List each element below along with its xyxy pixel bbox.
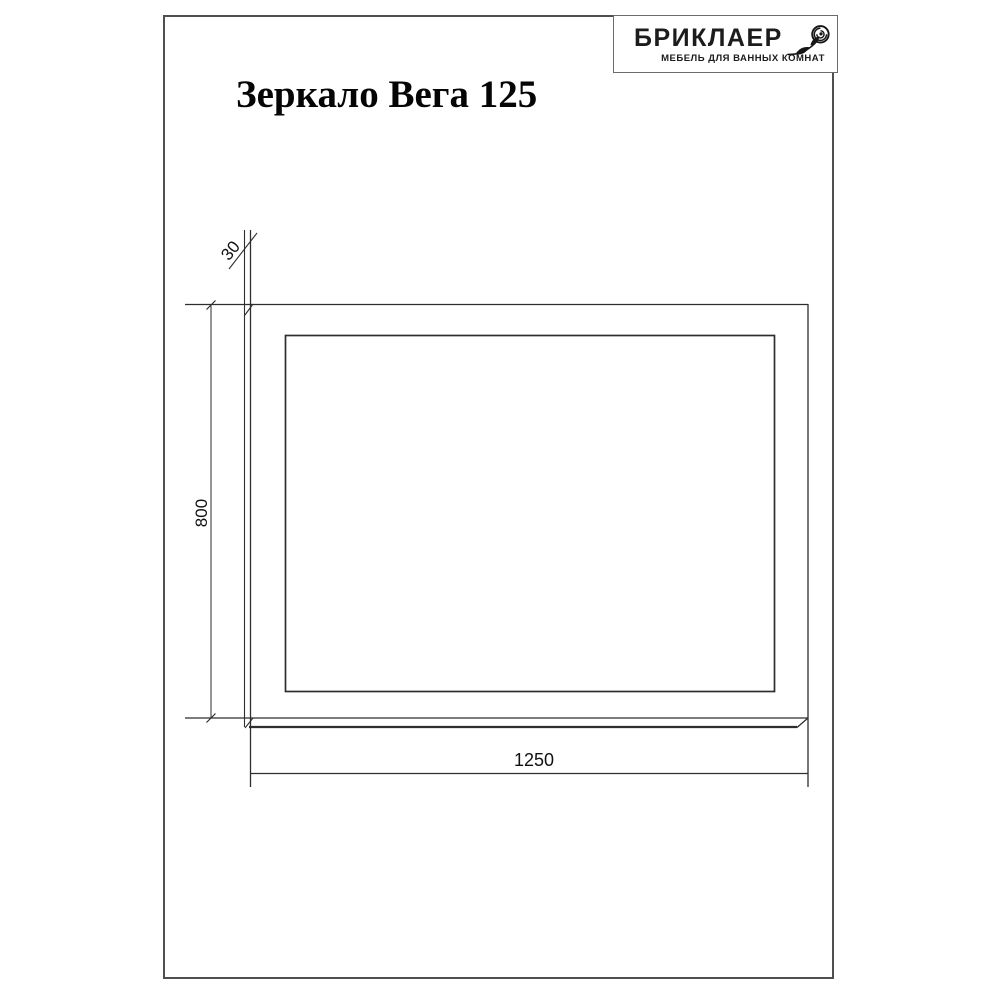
top-left-corner-bevel <box>245 304 253 315</box>
dimension-label-height: 800 <box>193 491 211 535</box>
bottom-right-corner-bevel <box>797 718 808 728</box>
drawing-sheet: БРИКЛАЕР МЕБЕЛЬ ДЛЯ ВАННЫХ КОМНАТ Зеркал… <box>0 0 1000 1000</box>
dimension-label-width: 1250 <box>504 751 564 769</box>
mirror-inner-frame <box>286 336 775 692</box>
technical-drawing <box>0 0 1000 1000</box>
